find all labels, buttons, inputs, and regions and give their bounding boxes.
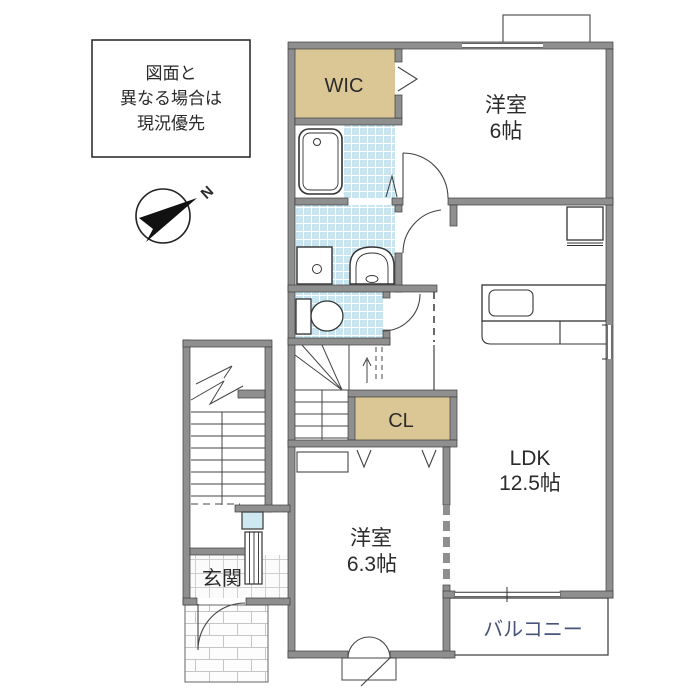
kitchen-counter-front (482, 321, 606, 344)
stairs-break-line (191, 381, 243, 404)
refrigerator-base-line (567, 243, 603, 246)
wall (288, 440, 457, 447)
wall (295, 198, 348, 205)
wic-label: WIC (325, 75, 364, 97)
balcony-label: バルコニー (483, 619, 583, 641)
disclaimer-line1: 図面と (146, 64, 197, 83)
wall (450, 397, 457, 440)
washroom-door-swing (403, 210, 441, 253)
bedroom2-name: 洋室 (350, 527, 392, 550)
window-entrance (242, 512, 263, 529)
wall (348, 397, 355, 440)
closet-bifold-doors (357, 450, 436, 467)
bedroom1-size: 6帖 (490, 120, 523, 143)
ldk-size: 12.5帖 (499, 472, 561, 495)
floor-plan: 図面と 異なる場合は 現況優先 N WIC 洋室 6帖 LDK 12.5帖 CL… (0, 0, 700, 700)
stairs-up-arrow (363, 358, 371, 383)
exterior-stairs (191, 366, 265, 505)
wall (560, 591, 613, 598)
wall (246, 598, 290, 605)
wall (288, 651, 348, 658)
floor-plan-drawing: 図面と 異なる場合は 現況優先 N WIC 洋室 6帖 LDK 12.5帖 CL… (0, 0, 700, 700)
toilet-tank (296, 299, 311, 334)
bedroom1-door-swing (403, 153, 448, 198)
bedroom1-name: 洋室 (485, 94, 527, 117)
wall (348, 390, 457, 397)
wall (288, 285, 437, 292)
interior-stairs-winders (295, 345, 342, 390)
neighbor-outline (503, 15, 590, 43)
north-arrow-icon (139, 198, 197, 242)
bedroom2-window-swing (348, 637, 391, 686)
washer-drain (366, 276, 378, 283)
wall (265, 347, 272, 512)
wall (183, 340, 190, 605)
wall (295, 118, 402, 125)
wall (390, 651, 455, 658)
wall (392, 198, 403, 205)
closet-label: CL (388, 410, 414, 432)
disclaimer-line3: 現況優先 (137, 114, 205, 133)
toilet-bowl (311, 301, 343, 331)
wall (235, 505, 290, 512)
bathtub-drain (314, 139, 321, 146)
compass-north-label: N (198, 183, 217, 203)
wall (395, 205, 402, 212)
disclaimer-note: 図面と 異なる場合は 現況優先 (92, 40, 250, 157)
refrigerator-space (567, 207, 603, 240)
wall (183, 340, 272, 347)
bedroom2-size: 6.3帖 (347, 553, 397, 576)
wall (443, 447, 450, 505)
exterior-stairs-arrow (196, 366, 232, 384)
wall (183, 598, 197, 605)
wall (443, 591, 455, 598)
disclaimer-line2: 異なる場合は (120, 89, 222, 108)
wall (395, 49, 402, 62)
shoe-cabinet (245, 532, 262, 584)
wall (448, 198, 613, 205)
exterior-stairs-steps (191, 412, 265, 496)
wall (383, 292, 390, 298)
toilet-door-swing (383, 294, 420, 331)
wic-folding-door (398, 67, 417, 91)
wall (395, 95, 402, 118)
wall (288, 338, 390, 345)
entrance-label: 玄関 (202, 567, 242, 590)
wall (190, 548, 245, 555)
ldk-name: LDK (510, 447, 551, 470)
bedroom2-bay-window (342, 658, 396, 680)
wall (288, 42, 613, 49)
kitchen-sink (489, 290, 533, 316)
wall (450, 205, 457, 226)
wall (288, 49, 295, 658)
understair-cabinet (297, 452, 348, 472)
bath-tile-floor (343, 125, 395, 198)
wall (606, 49, 613, 598)
compass: N (136, 183, 217, 243)
washbasin-bowl (313, 265, 322, 274)
wall (238, 390, 265, 398)
